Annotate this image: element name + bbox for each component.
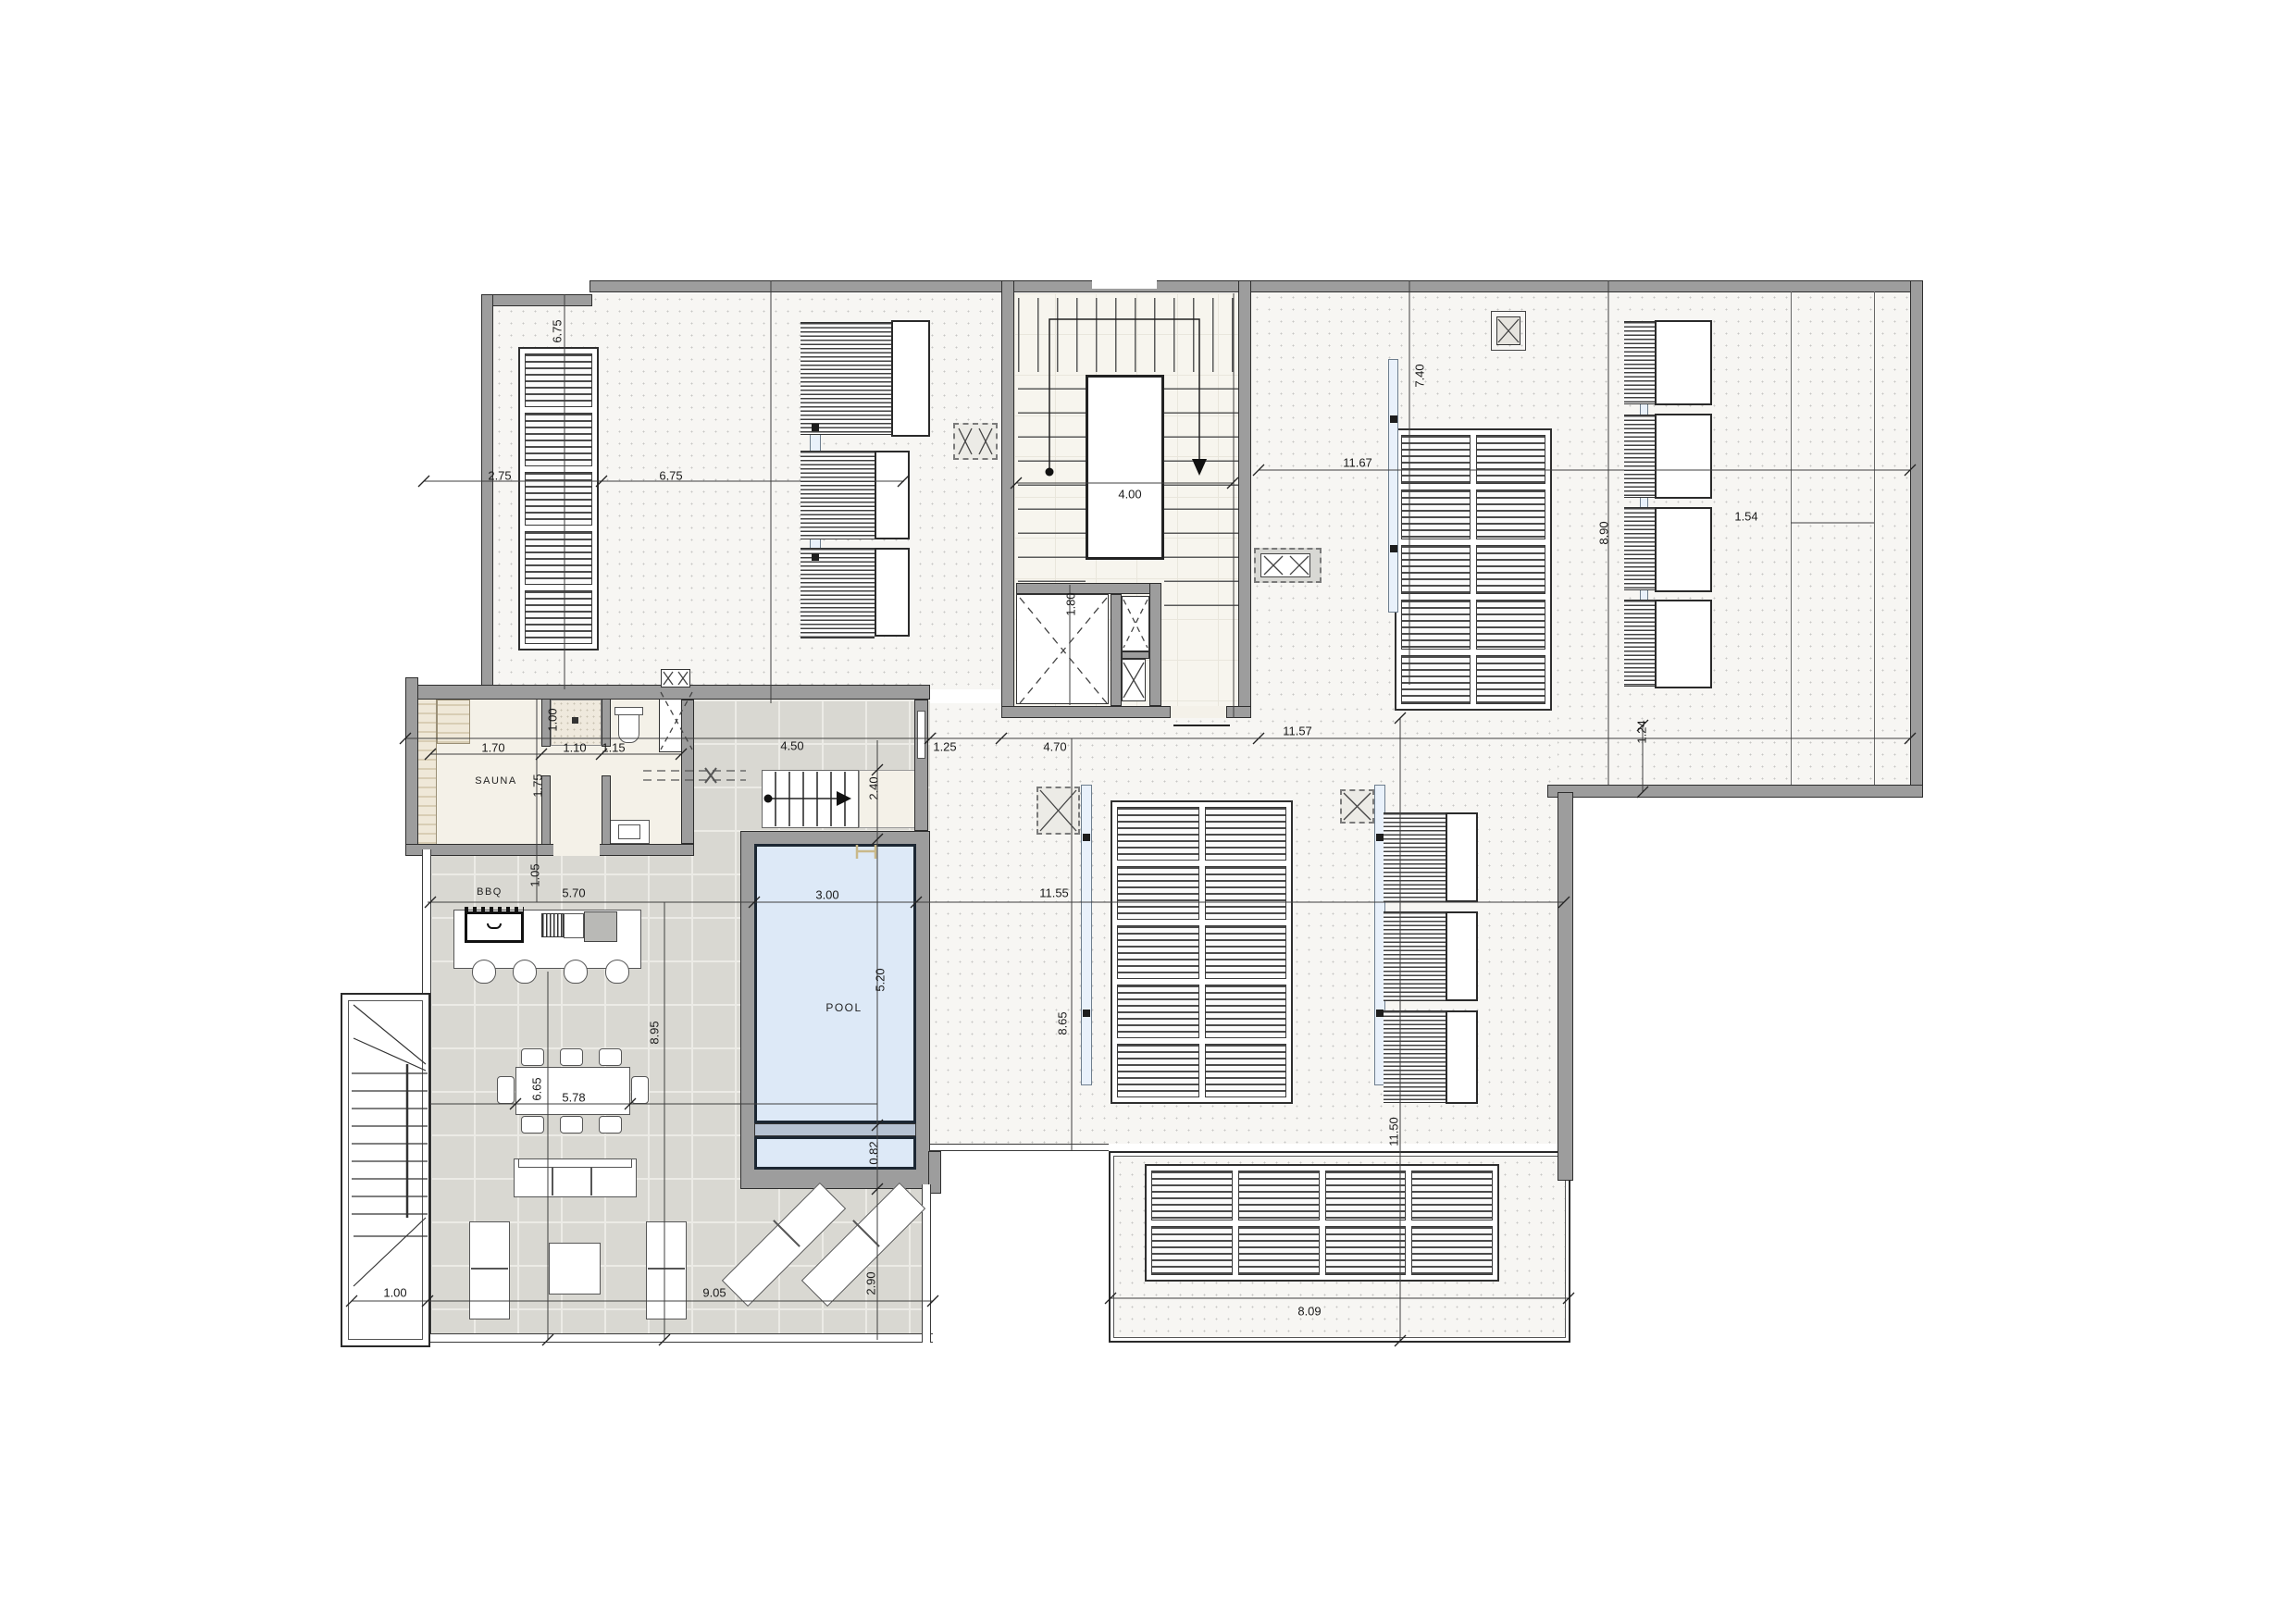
dim-label: 2.75	[488, 469, 511, 483]
sauna-bench-corner	[437, 700, 470, 744]
pool-water	[754, 844, 916, 1123]
fin-panel	[1655, 507, 1712, 592]
roof-vent	[953, 423, 998, 460]
louvre-cell	[1411, 1171, 1493, 1220]
fin-panel	[1655, 414, 1712, 499]
fin-panel	[1655, 600, 1712, 688]
window-pool-landing	[917, 711, 925, 759]
fin-panel	[1446, 1010, 1478, 1104]
dim-label: 11.57	[1283, 725, 1312, 738]
duct-shaft-2	[1122, 659, 1146, 701]
dim-label: 11.50	[1387, 1117, 1401, 1146]
louvre-cell	[1476, 600, 1545, 649]
dim-label: 2.90	[864, 1271, 878, 1295]
kitchen-sink	[564, 913, 584, 938]
fin-element	[1384, 911, 1446, 1001]
dining-chair	[560, 1116, 583, 1134]
fin-panel	[1446, 911, 1478, 1001]
bar-stool	[564, 960, 588, 984]
strip-marker	[812, 553, 819, 561]
skylight-louvre-grid-bottom	[1145, 1164, 1499, 1282]
dining-chair	[560, 1048, 583, 1066]
dim-label: 1.10	[563, 741, 586, 755]
wall-top-main	[590, 280, 1923, 292]
sofa-seat-divider	[590, 1168, 592, 1196]
wall-stair-south-2	[1226, 706, 1251, 718]
sauna-partition-2a	[602, 697, 611, 747]
wall-stair-west	[1001, 280, 1014, 718]
roof-edge-strip	[930, 1144, 1109, 1151]
pool-step-divider	[754, 1123, 916, 1136]
dim-label: 6.75	[659, 469, 682, 483]
louvre-cell	[1325, 1226, 1407, 1276]
dining-chair	[599, 1116, 622, 1134]
dining-chair	[521, 1116, 544, 1134]
coffee-table	[549, 1243, 601, 1295]
skylight-louvre-grid-right	[1395, 428, 1552, 711]
stair-run-left	[1018, 370, 1086, 606]
roof-vent	[1036, 787, 1080, 835]
dim-label: 1.75	[531, 774, 545, 797]
room-label-pool: POOL	[825, 1001, 862, 1014]
door-opening-sauna	[553, 844, 600, 856]
stair-run-right	[1164, 370, 1238, 606]
dim-label: 7.40	[1413, 364, 1427, 387]
parapet-terrace-south	[422, 1333, 933, 1343]
dim-label: 11.67	[1343, 456, 1372, 470]
louvre-cell	[1205, 1044, 1287, 1097]
dim-label: 11.55	[1039, 886, 1069, 900]
wall-stair-east	[1238, 280, 1251, 718]
wall-left-block-west	[481, 294, 493, 689]
louvre-cell	[1476, 489, 1545, 539]
room-label-sauna: SAUNA	[475, 775, 516, 787]
louvre-cell	[1401, 435, 1471, 484]
pool-step-water	[754, 1136, 916, 1170]
dining-chair	[521, 1048, 544, 1066]
fin-element	[800, 322, 893, 435]
roof-vent-inner	[1496, 316, 1520, 345]
lounge-chair-line	[471, 1268, 508, 1270]
skylight-louvre-grid-middle	[1111, 800, 1293, 1104]
fin-panel	[891, 320, 930, 437]
dining-chair	[497, 1076, 515, 1104]
louvre-cell	[1401, 600, 1471, 649]
strip-marker	[1390, 415, 1397, 423]
louvre-cell	[525, 590, 592, 644]
dim-label: 1.00	[546, 708, 560, 731]
wall-elevator-east	[1111, 594, 1122, 706]
wall-sauna-south	[405, 844, 694, 856]
strip-marker	[1390, 545, 1397, 552]
strip-marker	[1376, 834, 1384, 841]
exhaust-vent-inner	[1260, 553, 1310, 577]
dim-label: 1.15	[602, 741, 625, 755]
glass-strip-2	[1388, 359, 1398, 613]
roof-vent	[1340, 789, 1374, 824]
stair-core-newel	[1086, 375, 1164, 560]
louvre-cell	[1117, 807, 1199, 861]
wall-shaft-east	[1149, 583, 1161, 706]
wall-stair-south-1	[1001, 706, 1171, 718]
wall-top-left	[481, 294, 592, 306]
dim-label: 1.54	[1734, 510, 1757, 524]
wall-southeast	[1547, 785, 1923, 798]
louvre-cell	[525, 413, 592, 466]
toilet	[618, 714, 639, 743]
glass-strip-4	[1081, 785, 1092, 1085]
wall-shaft-mid	[1122, 651, 1149, 659]
louvre-cell	[1476, 435, 1545, 484]
sofa-seat-divider	[552, 1168, 553, 1196]
floor-plan-canvas: 2.75 6.75 6.75 4.00 11.67 7.40 8.90 1.54…	[0, 0, 2296, 1623]
wall-sauna-east	[681, 700, 694, 844]
fin-element	[1384, 812, 1446, 902]
wall-right-lower	[1558, 792, 1573, 1181]
duct-shaft-1	[1122, 596, 1149, 651]
louvre-cell	[1117, 925, 1199, 979]
fin-element	[800, 451, 875, 539]
dim-label: 5.20	[874, 968, 887, 991]
louvre-cell	[1117, 985, 1199, 1038]
louvre-cell	[1151, 1226, 1233, 1276]
louvre-cell	[1238, 1171, 1320, 1220]
shower-drain	[572, 717, 578, 724]
elevator-shaft	[1016, 594, 1109, 704]
louvre-cell	[1117, 1044, 1199, 1097]
louvre-cell	[1476, 545, 1545, 594]
dim-label: 8.65	[1056, 1011, 1070, 1035]
pool-stair	[762, 770, 859, 828]
louvre-cell	[1205, 925, 1287, 979]
lounge-chair-line	[648, 1268, 685, 1270]
dim-label: 4.70	[1043, 740, 1066, 754]
wall-east-main	[1910, 280, 1923, 792]
louvre-cell	[1325, 1171, 1407, 1220]
louvre-cell	[1238, 1226, 1320, 1276]
dim-label: 2.40	[867, 776, 881, 799]
louvre-cell	[1401, 489, 1471, 539]
louvre-cell	[525, 531, 592, 585]
stair-run-top	[1018, 298, 1238, 372]
bar-stool	[605, 960, 629, 984]
lounge-chair	[646, 1221, 687, 1319]
dim-label: 1.80	[1064, 592, 1078, 615]
fin-panel	[1655, 320, 1712, 405]
door-opening-stair-core	[1171, 706, 1226, 718]
roof-vent-small	[661, 669, 690, 688]
sofa-back	[518, 1158, 632, 1168]
fin-panel	[875, 451, 910, 539]
dim-label: 1.25	[933, 740, 956, 754]
louvre-cell	[1401, 655, 1471, 704]
louvre-cell	[525, 472, 592, 526]
skylight-louvre-grid-left	[518, 347, 599, 650]
dim-label: 6.65	[530, 1077, 544, 1100]
louvre-cell	[1476, 655, 1545, 704]
louvre-cell	[1205, 807, 1287, 861]
dim-label: 6.75	[551, 319, 565, 342]
dim-label: 1.24	[1635, 720, 1649, 743]
dim-label: 0.82	[867, 1141, 881, 1164]
louvre-cell	[1117, 866, 1199, 920]
lounge-chair	[469, 1221, 510, 1319]
dim-label: 5.78	[562, 1091, 585, 1105]
louvre-cell	[1411, 1226, 1493, 1276]
dim-label: 1.70	[481, 741, 504, 755]
washbasin-bowl	[618, 824, 640, 839]
louvre-cell	[1401, 545, 1471, 594]
strip-marker	[812, 424, 819, 431]
dim-label: 5.70	[562, 886, 585, 900]
louvre-cell	[1205, 866, 1287, 920]
louvre-cell	[525, 353, 592, 407]
fin-element	[1384, 1010, 1446, 1103]
bar-stool	[513, 960, 537, 984]
room-label-bbq: BBQ	[477, 886, 503, 898]
louvre-cell	[1151, 1171, 1233, 1220]
wall-elevator-north	[1016, 583, 1161, 594]
facade-line	[1874, 291, 1875, 785]
dim-label: 9.05	[702, 1286, 726, 1300]
fin-element	[800, 548, 875, 638]
sauna-partition-2b	[602, 775, 611, 846]
sauna-bench-left	[418, 700, 437, 844]
kitchen-sink-hatched	[541, 913, 564, 937]
louvre-cell	[1205, 985, 1287, 1038]
dim-label: 8.90	[1597, 521, 1611, 544]
strip-marker	[1083, 834, 1090, 841]
strip-marker	[1083, 1010, 1090, 1017]
fin-panel	[875, 548, 910, 637]
bbq-grill-knobs	[465, 907, 524, 911]
dim-label: 1.00	[383, 1286, 406, 1300]
dim-label: 3.00	[815, 888, 838, 902]
stair-top-recess	[1092, 280, 1157, 289]
dining-chair	[599, 1048, 622, 1066]
dining-chair	[631, 1076, 649, 1104]
dim-label: 8.09	[1297, 1305, 1321, 1319]
bar-stool	[472, 960, 496, 984]
toilet-cistern	[614, 707, 643, 715]
strip-marker	[1376, 1010, 1384, 1017]
fin-panel	[1446, 812, 1478, 902]
dim-label: 1.05	[528, 863, 542, 886]
dim-label: 4.00	[1118, 488, 1141, 502]
facade-line	[1791, 291, 1792, 785]
dim-label: 8.95	[648, 1021, 662, 1044]
wall-sauna-west	[405, 677, 418, 856]
dim-label: 4.50	[780, 739, 803, 753]
kitchen-cooktop	[584, 911, 617, 942]
